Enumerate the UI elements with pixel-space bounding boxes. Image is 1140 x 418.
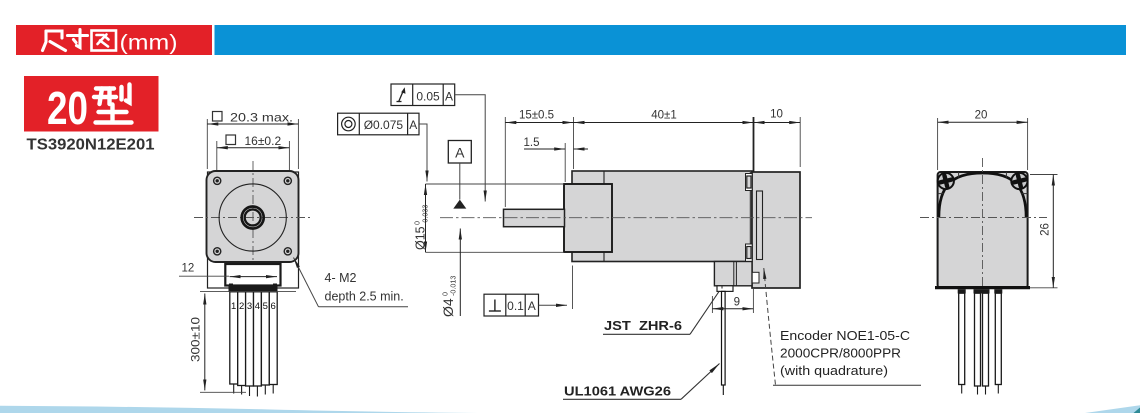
svg-text:0.1: 0.1 [507, 299, 524, 313]
svg-text:26: 26 [1040, 223, 1052, 236]
svg-text:2: 2 [239, 301, 244, 312]
svg-text:4- M2: 4- M2 [325, 271, 357, 285]
svg-text:0.05: 0.05 [416, 90, 440, 104]
svg-text:4: 4 [255, 301, 260, 312]
svg-text:6: 6 [271, 301, 276, 312]
svg-text:2000CPR/8000PPR: 2000CPR/8000PPR [780, 346, 901, 361]
svg-text:10: 10 [770, 109, 783, 121]
svg-text:(with quadrature): (with quadrature) [780, 363, 888, 378]
svg-text:JST ZHR-6: JST ZHR-6 [604, 318, 682, 333]
svg-text:3: 3 [247, 301, 252, 312]
svg-text:A: A [409, 118, 417, 132]
svg-text:16±0.2: 16±0.2 [245, 134, 282, 148]
svg-text:20: 20 [975, 110, 988, 122]
svg-text:5: 5 [263, 301, 268, 312]
svg-text:1.5: 1.5 [524, 137, 540, 149]
svg-text:1: 1 [231, 301, 236, 312]
svg-text:(mm): (mm) [120, 31, 178, 54]
svg-text:UL1061 AWG26: UL1061 AWG26 [564, 384, 671, 399]
svg-text:A: A [528, 299, 536, 313]
svg-text:-0.013: -0.013 [449, 276, 458, 296]
svg-text:Ø15: Ø15 [414, 226, 428, 250]
svg-text:300±10: 300±10 [191, 317, 203, 362]
svg-text:12: 12 [182, 263, 195, 275]
svg-text:A: A [445, 90, 453, 104]
svg-text:20: 20 [47, 82, 88, 134]
svg-text:Ø4: Ø4 [440, 298, 456, 317]
svg-text:15±0.5: 15±0.5 [519, 110, 554, 122]
svg-text:A: A [455, 145, 465, 161]
svg-text:Ø0.075: Ø0.075 [364, 118, 404, 132]
svg-text:20.3 max.: 20.3 max. [230, 111, 293, 125]
svg-text:9: 9 [734, 297, 740, 309]
svg-text:TS3920N12E201: TS3920N12E201 [27, 137, 155, 154]
svg-text:-0.033: -0.033 [421, 205, 430, 225]
svg-text:depth 2.5 min.: depth 2.5 min. [325, 290, 404, 304]
svg-text:40±1: 40±1 [651, 110, 677, 122]
svg-text:Encoder NOE1-05-C: Encoder NOE1-05-C [780, 328, 911, 343]
